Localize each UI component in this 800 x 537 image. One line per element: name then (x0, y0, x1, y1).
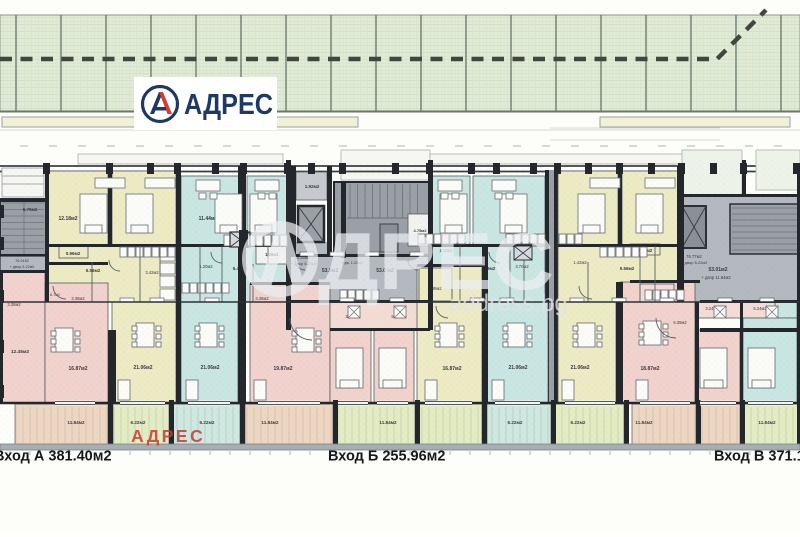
svg-text:Вход А 381.40м2: Вход А 381.40м2 (0, 449, 112, 465)
svg-text:Вход В 371.1: Вход В 371.1 (714, 449, 800, 465)
svg-text:АДРЕС: АДРЕС (184, 89, 273, 121)
svg-text:Вход Б 255.96м2: Вход Б 255.96м2 (328, 449, 445, 465)
